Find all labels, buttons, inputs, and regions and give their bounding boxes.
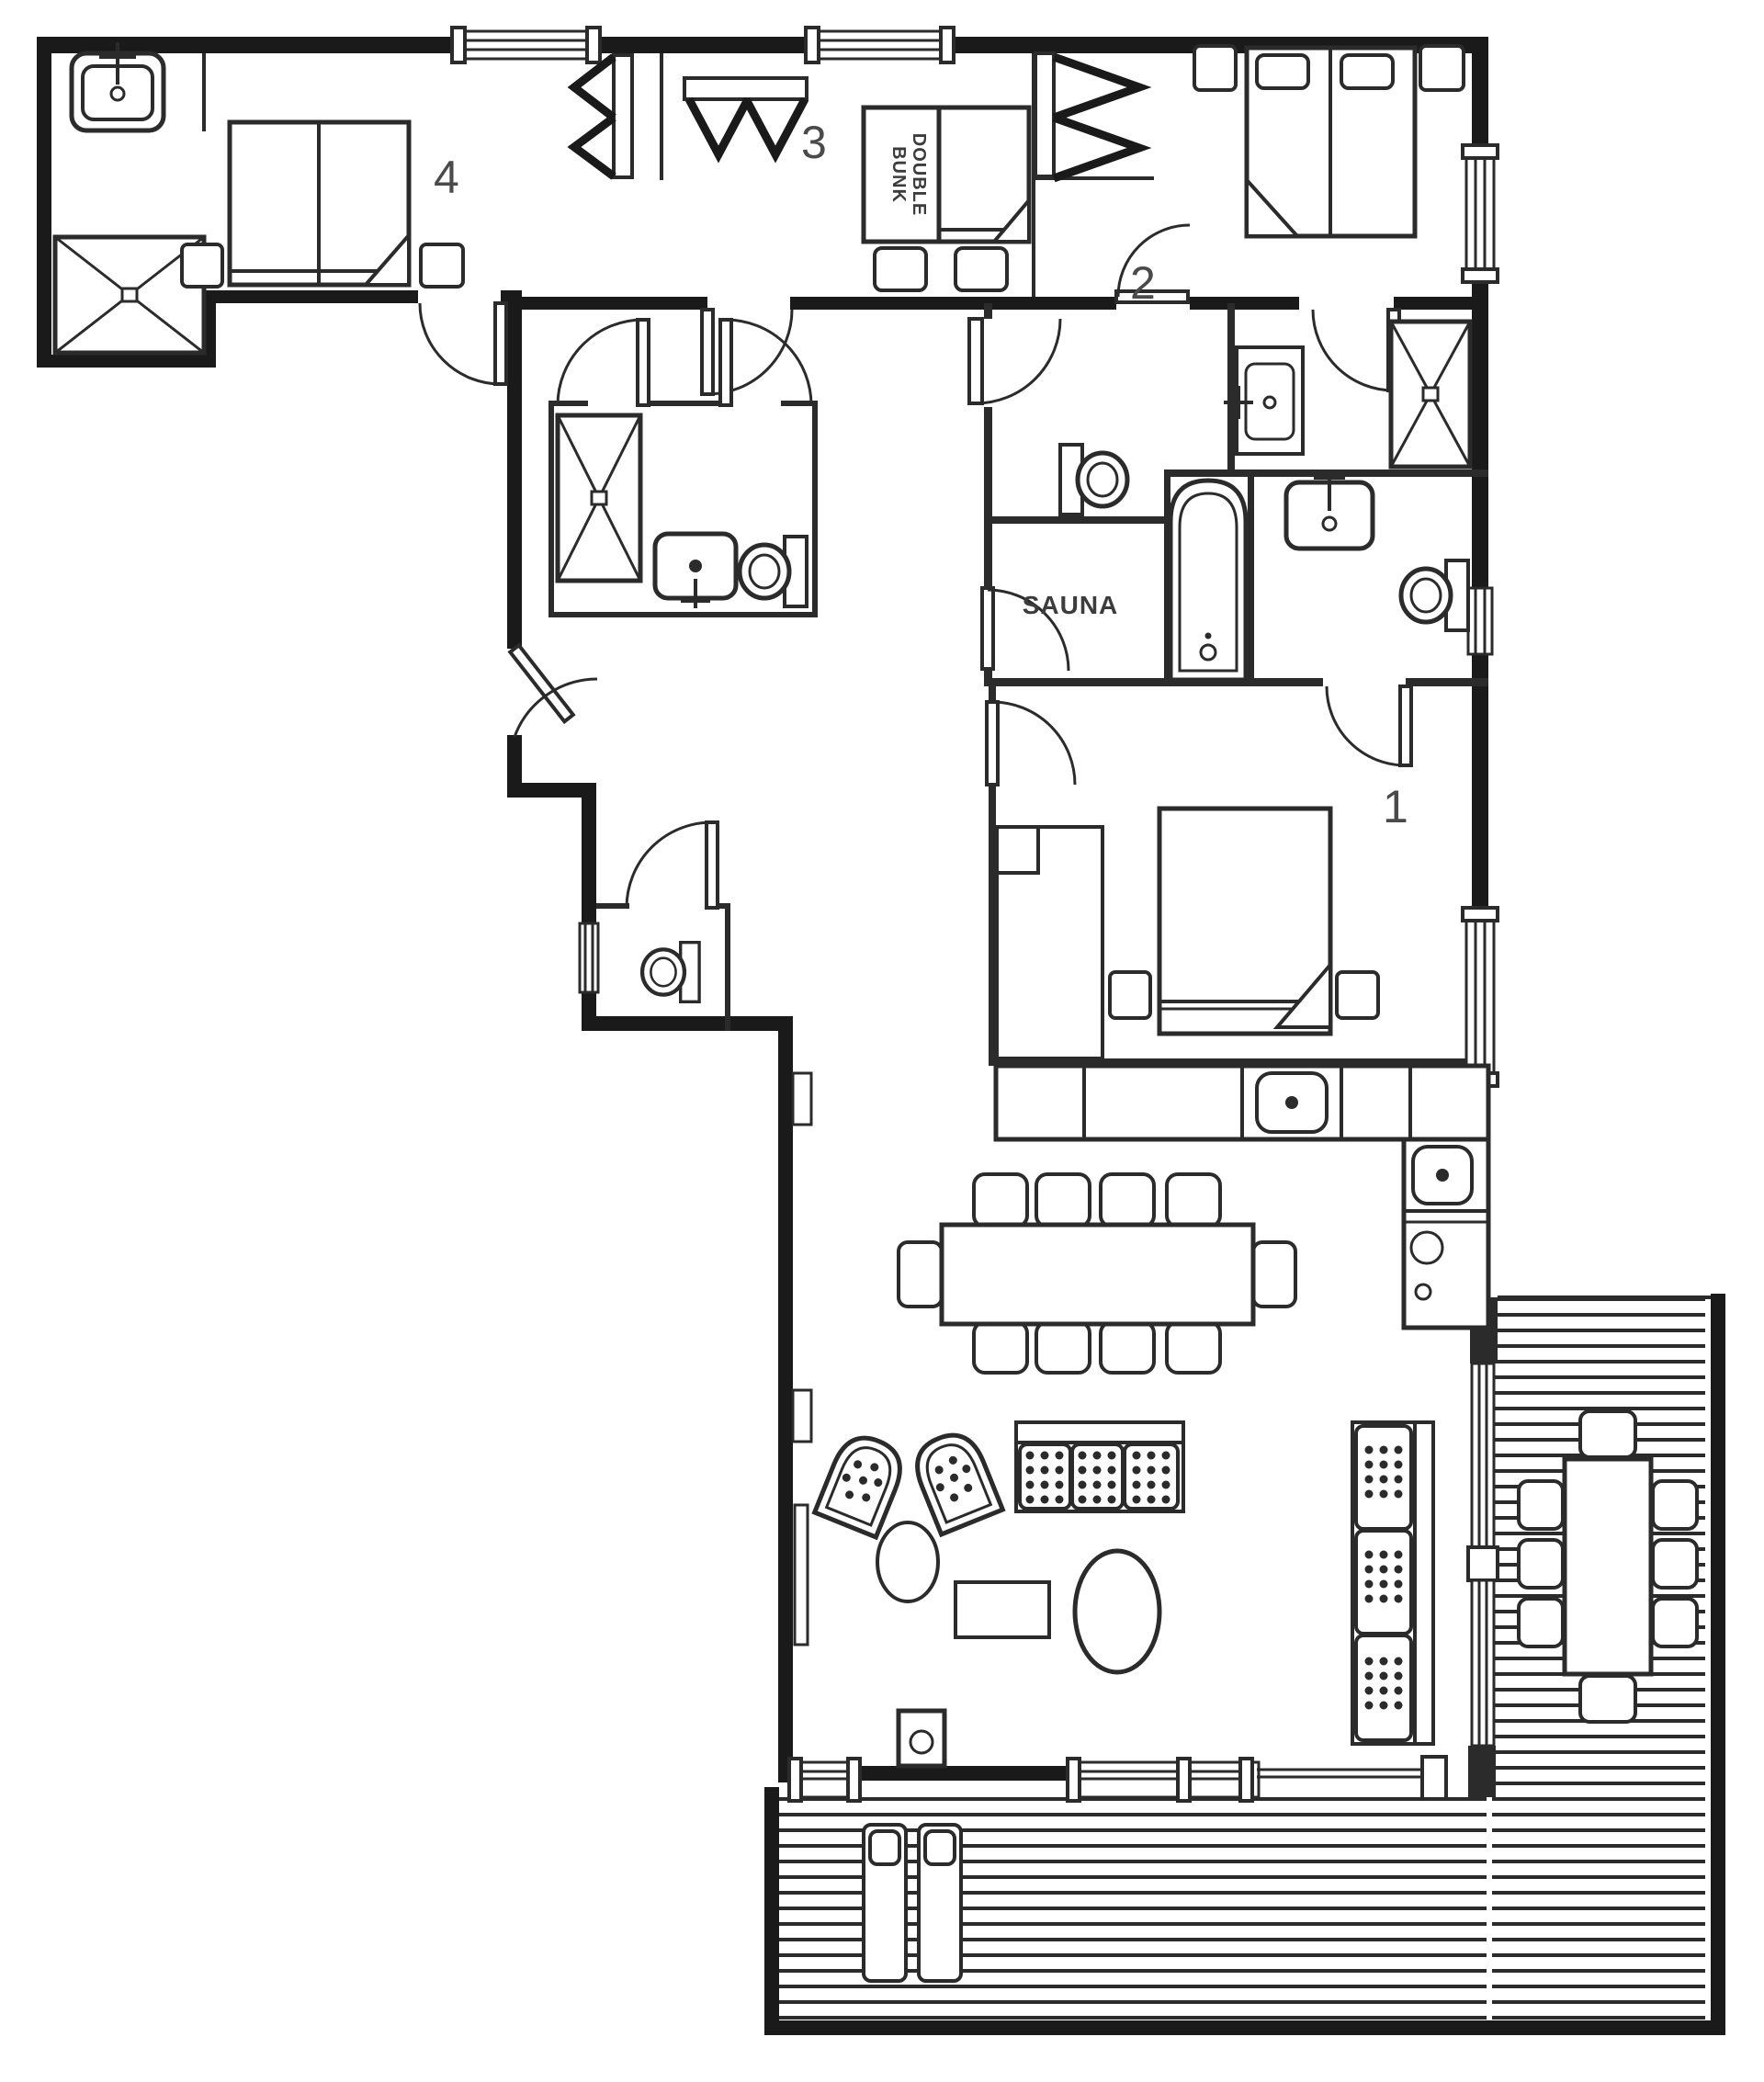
dining-chair [1036,1174,1090,1227]
dining-chair [899,1242,942,1307]
dining-table [942,1225,1253,1324]
bedroom1-door [987,702,1075,785]
sun-loungers [864,1825,961,1981]
dining-chair [974,1174,1027,1227]
dining-chair [1167,1322,1220,1373]
nightstand [1337,972,1378,1018]
radiator [793,1073,811,1125]
nightstand [875,248,926,290]
bedroom-1-label: 1 [1383,781,1408,832]
dining-chair [1167,1174,1220,1227]
entry-door [510,645,597,737]
dining-chair [974,1322,1027,1373]
single-bed [939,107,1029,242]
outdoor-chair [1519,1481,1563,1529]
sliding-door-right [1468,1297,1498,1746]
armchair [908,1426,1002,1534]
sink [72,42,164,130]
double-bed [1247,48,1415,236]
double-bed [230,122,409,285]
toilet [1401,560,1468,630]
nightstand [421,244,463,287]
wc-door [627,822,718,908]
toilet [642,943,699,1002]
bedroom-3: DOUBLEBUNK 3 [684,78,1029,290]
bath-ensuite2-door [1313,310,1399,390]
fireplace-stove [899,1711,944,1766]
window-right-bath [1468,588,1492,654]
dining-chair [1101,1322,1154,1373]
closet [997,827,1102,1058]
toilet [1060,445,1127,515]
shower [1391,322,1470,467]
double-bed [1159,809,1330,1034]
bathroom-ensuite2 [1224,322,1470,467]
nightstand [1420,46,1464,90]
dining-chair [1036,1322,1090,1373]
bedroom-4-label: 4 [434,152,459,203]
window-top-2 [806,28,954,62]
window-right-bedroom1 [1463,908,1498,1086]
sun-lounger [864,1825,906,1981]
anteroom-door [969,319,1060,403]
nightstand [955,248,1007,290]
bathroom-center-door-2 [720,320,811,405]
kitchen-sink [1257,1073,1327,1132]
outdoor-chair [1519,1599,1563,1646]
toilet [740,537,807,606]
bathtub [1170,481,1246,680]
bedroom4-door [420,303,506,384]
sink [1286,470,1373,549]
window-wc-west [580,923,598,992]
wardrobe [684,78,807,154]
nightstand [1194,46,1236,90]
window-bottom-1 [789,1759,860,1801]
sink-console [1224,347,1303,454]
floor-plan-svg: 4 DOUBLEBUNK 3 [0,0,1764,2082]
sofa-right [1352,1422,1433,1744]
window-top-1 [452,28,600,62]
radiator [795,1505,808,1645]
kitchen-sink-2 [1413,1147,1472,1204]
dining-chair [1101,1174,1154,1227]
sauna-room: SAUNA [1023,591,1119,619]
sofa-top [1016,1422,1183,1511]
sauna-label: SAUNA [1023,591,1119,619]
bunk-bed: DOUBLEBUNK [864,107,939,242]
living-room [815,1422,1433,1766]
wardrobe [574,55,632,177]
dining-area [899,1174,1295,1373]
floor-plan-page: 4 DOUBLEBUNK 3 [0,0,1764,2082]
round-table [1075,1551,1159,1672]
bath-ensuite1-door [1327,686,1411,765]
wardrobe [1035,53,1139,178]
coffee-table [955,1582,1049,1637]
bedroom-2-label: 2 [1130,257,1156,309]
outdoor-chair [1519,1540,1563,1588]
nightstand [182,244,222,287]
outdoor-chair [1653,1540,1697,1588]
windows [452,28,1498,1801]
outdoor-chair [1653,1481,1697,1529]
sun-lounger [919,1825,961,1981]
window-bottom-2 [1068,1759,1259,1801]
sink [655,534,736,608]
window-right-bedroom2 [1463,145,1498,282]
bathroom-center [558,415,807,608]
armchair [815,1429,910,1537]
wc-room [642,943,699,1002]
dining-chair [1253,1242,1295,1307]
sliding-door-bottom [1257,1746,1496,1799]
outdoor-chair [1580,1411,1635,1457]
shower [558,415,640,581]
side-table [877,1522,938,1601]
nightstand [1110,972,1150,1018]
anteroom [1060,445,1127,515]
bathroom-center-door-1 [558,320,649,405]
outdoor-chair [1653,1599,1697,1646]
bedroom-1: 1 [997,781,1408,1058]
radiator [793,1390,811,1442]
outdoor-chair [1580,1676,1635,1722]
outdoor-table [1565,1459,1651,1674]
bedroom-3-label: 3 [801,117,827,168]
bathroom-ensuite1 [1286,470,1468,630]
